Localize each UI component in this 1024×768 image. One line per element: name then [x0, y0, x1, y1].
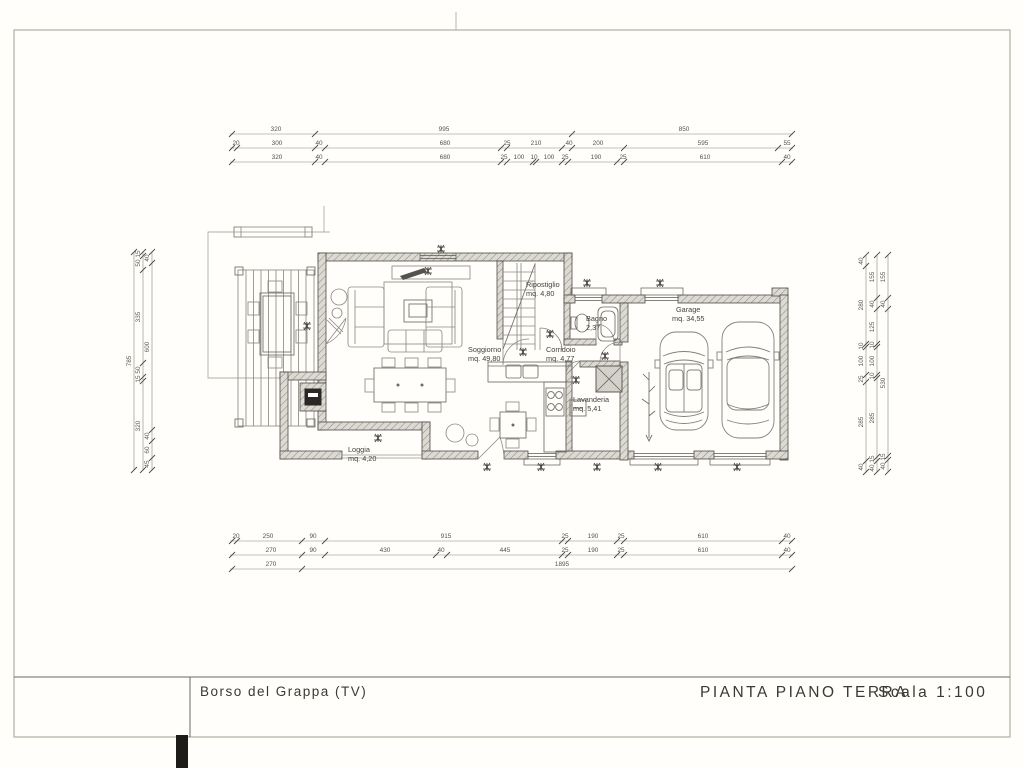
dim-label: 40 — [858, 257, 865, 265]
dining-table — [365, 358, 455, 412]
room-area: mq. 4,80 — [526, 289, 554, 298]
dim-label: 40 — [144, 432, 151, 440]
door-entrance — [478, 437, 504, 459]
dim-label: 610 — [698, 547, 709, 554]
dim-label: 320 — [271, 126, 282, 133]
dim-label: 15 — [869, 455, 876, 463]
sofa-right — [426, 287, 462, 347]
room-area: mq. 49,80 — [468, 354, 500, 363]
dim-label: 445 — [500, 547, 511, 554]
dim-label: 20 — [232, 140, 240, 147]
dim-label: 600 — [144, 341, 151, 352]
car-sports — [655, 332, 713, 430]
dim-label: 680 — [440, 154, 451, 161]
dimension-row-top-1: 320 995 850 — [229, 126, 795, 137]
dim-label: 40 — [565, 140, 573, 147]
opening-marker-icon — [437, 245, 445, 253]
dim-label: 850 — [679, 126, 690, 133]
opening-marker-icon — [733, 463, 741, 471]
dim-label: 40 — [858, 463, 865, 471]
dim-label: 90 — [309, 533, 317, 540]
dim-label: 25 — [561, 547, 569, 554]
window-kitchen-bottom — [524, 454, 560, 465]
dim-label: 25 — [617, 547, 625, 554]
opening-marker-icon — [374, 434, 382, 442]
dim-label: 40 — [783, 154, 791, 161]
kitchen-table — [490, 402, 536, 448]
room-area: mq. 5,41 — [573, 404, 601, 413]
dim-label: 155 — [869, 271, 876, 282]
dim-label: 40 — [315, 154, 323, 161]
dimension-chain-right-inner: 40 280 10 100 25 285 40 — [858, 252, 869, 475]
dim-label: 335 — [135, 311, 142, 322]
bathtub — [598, 307, 618, 341]
dim-label: 25 — [561, 154, 569, 161]
dim-label: 25 — [619, 154, 627, 161]
dimension-chain-left-total: 785 — [126, 249, 137, 473]
opening-marker-icon — [593, 463, 601, 471]
room-area: mq. 34,55 — [672, 314, 704, 323]
dim-label: 10 — [530, 154, 538, 161]
dim-label: 60 — [144, 446, 151, 454]
window-bath-top — [571, 288, 606, 300]
dim-label: 430 — [380, 547, 391, 554]
dim-label: 10 — [869, 341, 876, 349]
window-garage-bottom-1 — [630, 454, 698, 465]
dim-label: 15 — [880, 453, 887, 461]
dim-label: 10 — [858, 342, 865, 350]
dim-label: 55 — [783, 140, 791, 147]
dim-label: 45 — [144, 460, 151, 468]
dim-label: 25 — [503, 140, 511, 147]
dim-label: 200 — [593, 140, 604, 147]
dim-label: 40 — [783, 533, 791, 540]
dim-label: 40 — [869, 300, 876, 308]
room-name: Garage — [676, 305, 700, 314]
dim-label: 20 — [232, 533, 240, 540]
plant-pots-living — [327, 289, 347, 334]
dim-label: 155 — [880, 271, 887, 282]
title-block: Borso del Grappa (TV) PIANTA PIANO TERRA… — [200, 684, 987, 701]
dim-label: 285 — [869, 412, 876, 423]
dim-label: 90 — [309, 547, 317, 554]
dim-label: 10 — [869, 372, 876, 380]
dim-label: 270 — [266, 561, 277, 568]
dimension-row-top-3: 320 40 680 25 100 10 100 25 190 25 610 4… — [229, 154, 795, 165]
opening-marker-icon — [656, 279, 664, 287]
room-name: Soggiorno — [468, 345, 501, 354]
dim-label: 40 — [783, 547, 791, 554]
dim-label: 25 — [561, 533, 569, 540]
scan-shadow-corner — [176, 735, 188, 768]
opening-marker-icon — [572, 376, 580, 384]
dim-label: 25 — [617, 533, 625, 540]
drawing-title: PIANTA PIANO TERRA — [700, 684, 908, 701]
dim-label: 40 — [437, 547, 445, 554]
dim-label: 280 — [858, 299, 865, 310]
dimension-row-bottom-2: 270 90 430 40 445 25 190 25 610 40 — [229, 547, 795, 558]
dimension-chain-right-outer: 155 40 530 15 40 — [880, 252, 891, 475]
dim-label: 50 — [135, 366, 142, 374]
dim-label: 270 — [266, 547, 277, 554]
dim-label: 15 — [135, 250, 142, 258]
room-name: Ripostiglio — [526, 280, 560, 289]
dim-label: 25 — [858, 375, 865, 383]
sideboard-object — [400, 268, 427, 280]
window-garage-top — [641, 288, 683, 300]
dimension-row-bottom-1: 20 250 90 915 25 190 25 610 40 — [229, 533, 795, 544]
dimension-chain-right-mid: 155 40 125 10 100 10 285 15 40 — [869, 252, 880, 475]
dim-label: 610 — [700, 154, 711, 161]
dim-label: 785 — [126, 355, 133, 366]
dim-label: 1895 — [555, 561, 570, 568]
coffee-table — [404, 300, 432, 322]
room-area: 2,37 — [586, 323, 600, 332]
opening-marker-icon — [546, 330, 554, 338]
dim-label: 40 — [880, 300, 887, 308]
plant-pots-loggia — [446, 424, 478, 446]
room-name: Corridoio — [546, 345, 576, 354]
dim-label: 320 — [135, 420, 142, 431]
dim-label: 995 — [439, 126, 450, 133]
stove — [546, 388, 564, 416]
opening-marker-icon — [483, 463, 491, 471]
dim-label: 190 — [588, 533, 599, 540]
dim-label: 915 — [441, 533, 452, 540]
dim-label: 320 — [272, 154, 283, 161]
dim-label: 40 — [315, 140, 323, 147]
room-name: Bagno — [586, 314, 607, 323]
room-name: Lavanderia — [573, 395, 610, 404]
scanned-floor-plan-sheet: 320 995 850 20 300 40 680 25 210 40 200 … — [0, 0, 1024, 768]
dim-label: 210 — [531, 140, 542, 147]
dimension-chain-left-inner: 40 600 40 60 45 — [144, 249, 155, 473]
dim-label: 595 — [698, 140, 709, 147]
dim-label: 530 — [880, 377, 887, 388]
dim-label: 680 — [440, 140, 451, 147]
dim-label: 285 — [858, 416, 865, 427]
floor-plan-drawing: 320 995 850 20 300 40 680 25 210 40 200 … — [0, 0, 1024, 768]
dim-label: 40 — [144, 254, 151, 262]
dim-label: 40 — [869, 464, 876, 472]
room-area: mq. 4,77 — [546, 354, 574, 363]
dim-label: 25 — [500, 154, 508, 161]
room-area: mq. 4,20 — [348, 454, 376, 463]
opening-dimension-markers — [303, 245, 741, 471]
door-living-corridor — [503, 339, 529, 365]
staircase — [503, 263, 535, 350]
opening-marker-icon — [303, 322, 311, 330]
dim-label: 300 — [272, 140, 283, 147]
dimension-row-bottom-3: 270 1895 — [229, 561, 795, 572]
dimension-row-top-2: 20 300 40 680 25 210 40 200 595 55 — [229, 140, 795, 151]
dim-label: 100 — [514, 154, 525, 161]
drawing-scale: Scala 1:100 — [878, 684, 987, 701]
opening-marker-icon — [537, 463, 545, 471]
dim-label: 100 — [858, 355, 865, 366]
opening-marker-icon — [583, 279, 591, 287]
project-location: Borso del Grappa (TV) — [200, 684, 367, 699]
sofa-bottom — [388, 330, 442, 352]
dim-label: 250 — [263, 533, 274, 540]
dim-label: 15 — [135, 375, 142, 383]
dim-label: 190 — [591, 154, 602, 161]
car-sedan — [717, 322, 779, 438]
room-name: Loggia — [348, 445, 371, 454]
opening-marker-icon — [519, 348, 527, 356]
dim-label: 100 — [544, 154, 555, 161]
washing-machine — [596, 366, 622, 392]
opening-marker-icon — [654, 463, 662, 471]
dim-label: 610 — [698, 533, 709, 540]
dim-label: 50 — [135, 259, 142, 267]
survey-line-symbol — [642, 372, 655, 441]
fireplace — [300, 383, 326, 411]
dim-label: 190 — [588, 547, 599, 554]
dim-label: 40 — [880, 462, 887, 470]
sofa-left — [348, 287, 384, 347]
dim-label: 125 — [869, 321, 876, 332]
dim-label: 100 — [869, 355, 876, 366]
